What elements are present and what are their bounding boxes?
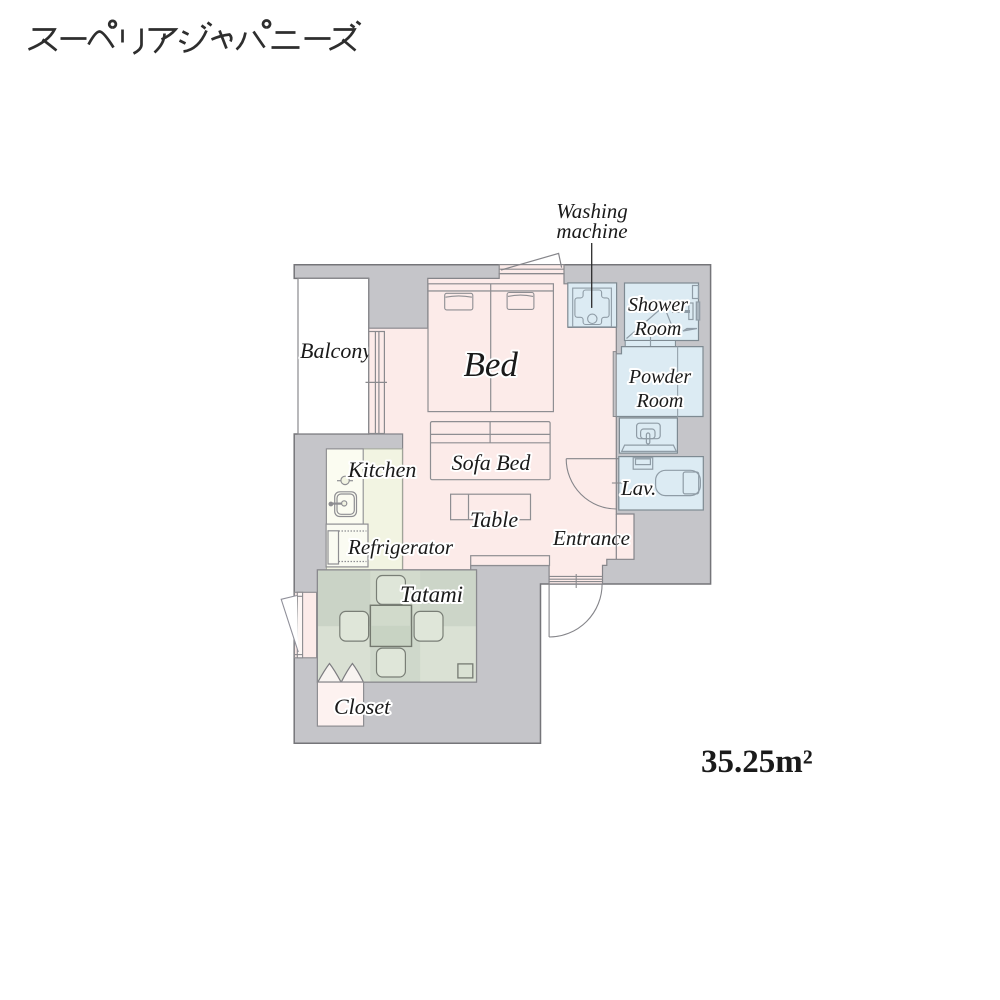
- svg-text:Closet: Closet: [334, 694, 391, 719]
- svg-text:Lav.: Lav.: [620, 476, 656, 500]
- svg-text:Bed: Bed: [463, 345, 518, 384]
- svg-text:Room: Room: [636, 390, 684, 412]
- svg-text:35.25m²: 35.25m²: [701, 744, 813, 780]
- svg-text:Sofa Bed: Sofa Bed: [452, 450, 532, 475]
- svg-text:Tatami: Tatami: [400, 582, 463, 607]
- svg-text:Kitchen: Kitchen: [347, 457, 416, 482]
- svg-text:Refrigerator: Refrigerator: [347, 535, 454, 559]
- svg-text:Shower: Shower: [628, 294, 688, 316]
- svg-text:Powder: Powder: [628, 366, 691, 388]
- svg-text:Balcony: Balcony: [300, 338, 372, 363]
- svg-text:Table: Table: [470, 507, 518, 532]
- svg-text:machine: machine: [556, 219, 627, 243]
- svg-text:Room: Room: [634, 318, 682, 340]
- svg-text:Entrance: Entrance: [552, 526, 630, 550]
